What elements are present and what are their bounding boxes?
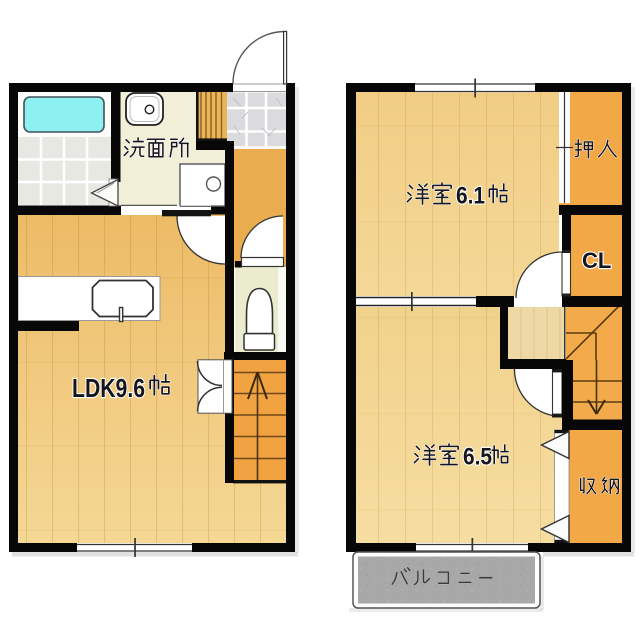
svg-text:6.5: 6.5 <box>463 444 492 471</box>
svg-text:LDK9.6: LDK9.6 <box>72 373 145 403</box>
svg-text:6.1: 6.1 <box>456 183 485 210</box>
svg-text:CL: CL <box>582 248 611 273</box>
